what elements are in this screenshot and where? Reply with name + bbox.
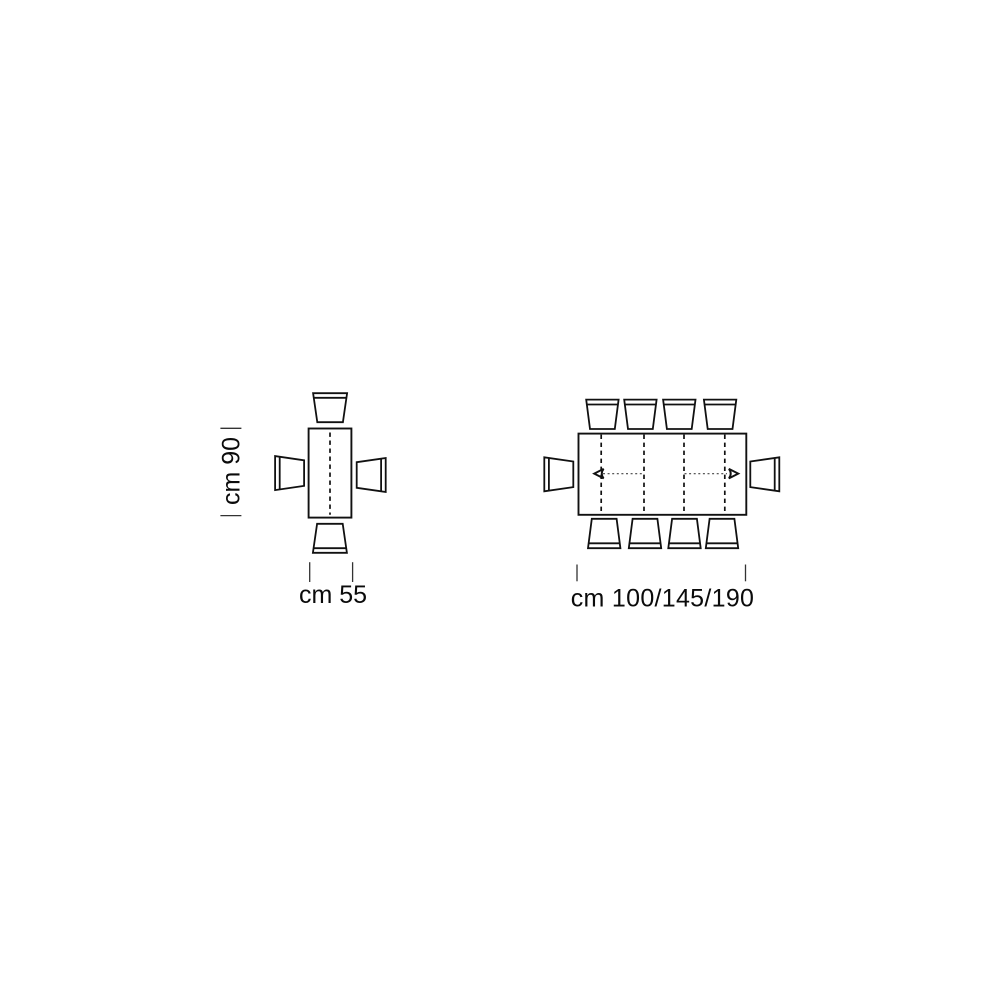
svg-text:cm 55: cm 55 (299, 581, 367, 609)
svg-text:cm 90: cm 90 (218, 437, 246, 505)
svg-text:cm 100/145/190: cm 100/145/190 (571, 584, 755, 612)
